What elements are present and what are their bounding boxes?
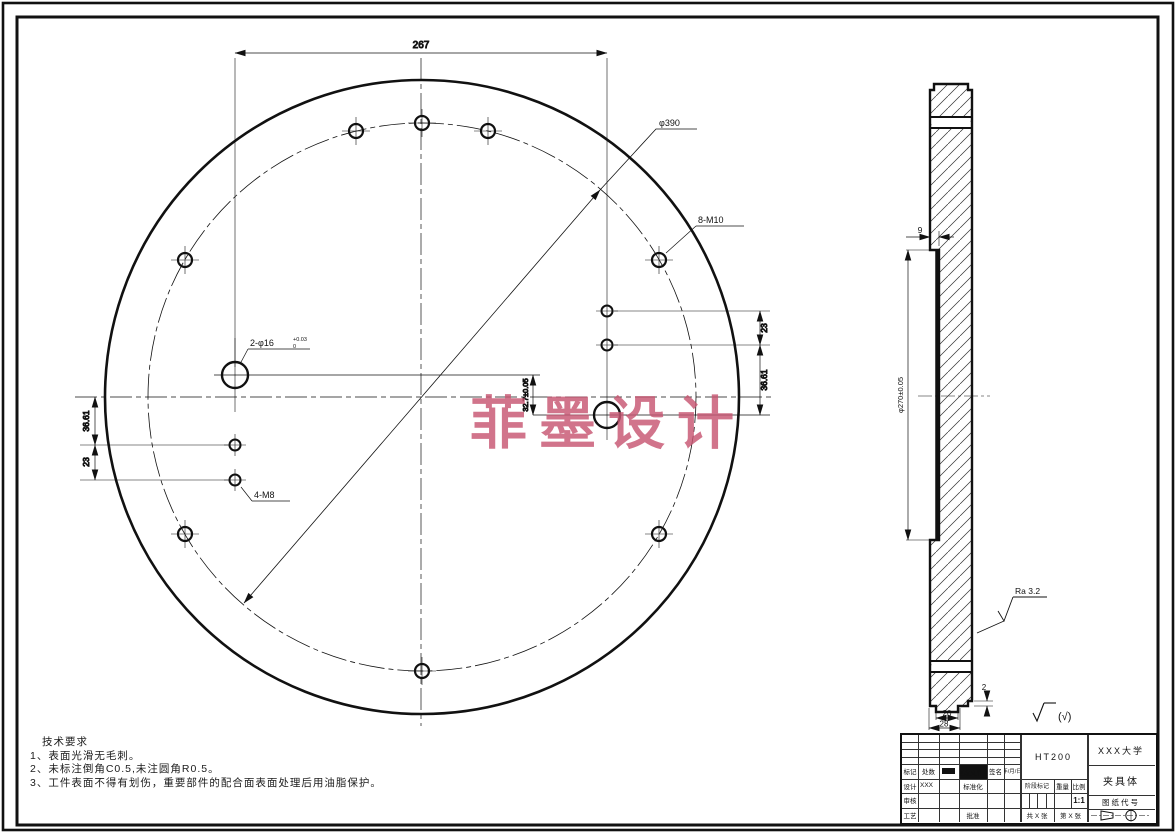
default-finish-note: (√) xyxy=(1058,711,1071,723)
roughness-text: Ra 3.2 xyxy=(1015,586,1040,596)
tech-req-title: 技术要求 xyxy=(30,736,382,750)
tb-scale-value: 1:1 xyxy=(1071,793,1087,808)
tb-line xyxy=(1037,793,1038,808)
tb-projection-symbol xyxy=(1087,809,1155,822)
tb-rev-count-label: 处数 xyxy=(918,764,939,779)
tb-line xyxy=(1029,793,1030,808)
tb-design-label: 设计 xyxy=(902,779,918,794)
tb-company: XXX大学 xyxy=(1087,735,1155,765)
label-8-m10: 8-M10 xyxy=(698,215,724,225)
dim-right-3661: 36.61 xyxy=(759,369,769,391)
tb-designer-name: XXX xyxy=(918,779,941,794)
tb-line xyxy=(902,793,1087,794)
watermark: 菲墨设计 xyxy=(470,378,746,460)
dim-left-23: 23 xyxy=(81,457,91,467)
tb-signature-label: 签名 xyxy=(987,764,1004,779)
tb-line xyxy=(902,757,1020,758)
tb-check-label: 审核 xyxy=(902,793,918,808)
label-2-phi16-tol-sub: 0 xyxy=(293,344,296,350)
tech-req-item-2: 2、未标注倒角C0.5,未注圆角R0.5。 xyxy=(30,763,382,777)
tb-weight-label: 重量 xyxy=(1054,779,1071,794)
tb-rev-mark-label: 标记 xyxy=(902,764,918,779)
tb-stage-label: 阶段标记 xyxy=(1020,779,1054,794)
tb-process-label: 工艺 xyxy=(902,808,918,823)
dim-267-text: 267 xyxy=(413,40,430,51)
tb-line xyxy=(1046,793,1047,808)
tb-scale-label: 比例 xyxy=(1071,779,1087,794)
label-2-phi16: 2-φ16 xyxy=(250,338,274,348)
tb-date-label: 年/月/日 xyxy=(1004,764,1020,779)
title-block: 标记 处数 更改文件号 签名 年/月/日 设计 XXX 标准化 审核 工艺 批准… xyxy=(900,733,1158,825)
label-phi390: φ390 xyxy=(659,118,680,128)
tb-change-doc-label: 更改文件号 xyxy=(960,765,988,779)
dim-9-text: 9 xyxy=(918,225,923,235)
tech-req-item-1: 1、表面光滑无毛刺。 xyxy=(30,750,382,764)
technical-requirements: 技术要求 1、表面光滑无毛刺。 2、未标注倒角C0.5,未注圆角R0.5。 3、… xyxy=(30,736,382,790)
dim-bore xyxy=(906,250,933,540)
tb-standardization-label: 标准化 xyxy=(959,779,987,794)
dim-left-3661: 36.61 xyxy=(81,410,91,432)
tb-material: HT200 xyxy=(1020,735,1087,779)
tb-approve-label: 批准 xyxy=(959,808,987,823)
tb-part-name: 夹具体 xyxy=(1087,765,1155,795)
dim-20-text: 20 xyxy=(943,709,952,718)
dim-2 xyxy=(974,691,993,716)
side-view xyxy=(906,84,1056,730)
tb-filled-mark xyxy=(942,768,955,774)
dim-28-text: 28 xyxy=(940,720,949,729)
default-finish-symbol xyxy=(1033,703,1056,721)
dims-left xyxy=(80,397,229,480)
roughness-symbol xyxy=(977,597,1047,633)
dim-bore-text: φ270±0.05 xyxy=(896,377,905,413)
tb-sheet-number: 第 X 张 xyxy=(1054,808,1087,823)
drawing-sheet: 267 32.7±0.05 23 36.61 36.61 23 xyxy=(0,0,1176,833)
dim-2-text: 2 xyxy=(982,683,987,692)
label-4-m8: 4-M8 xyxy=(254,490,275,500)
tb-drawing-number: 图纸代号 xyxy=(1087,795,1155,809)
label-2-phi16-tol-sup: +0.03 xyxy=(293,337,307,343)
phi390-leader xyxy=(600,129,697,190)
dim-right-23: 23 xyxy=(759,323,769,333)
tb-line xyxy=(902,742,1020,743)
tech-req-item-3: 3、工件表面不得有划伤，重要部件的配合面表面处理后用油脂保护。 xyxy=(30,777,382,791)
tb-sheets-total: 共 X 张 xyxy=(1020,808,1054,823)
tb-line xyxy=(902,749,1020,750)
